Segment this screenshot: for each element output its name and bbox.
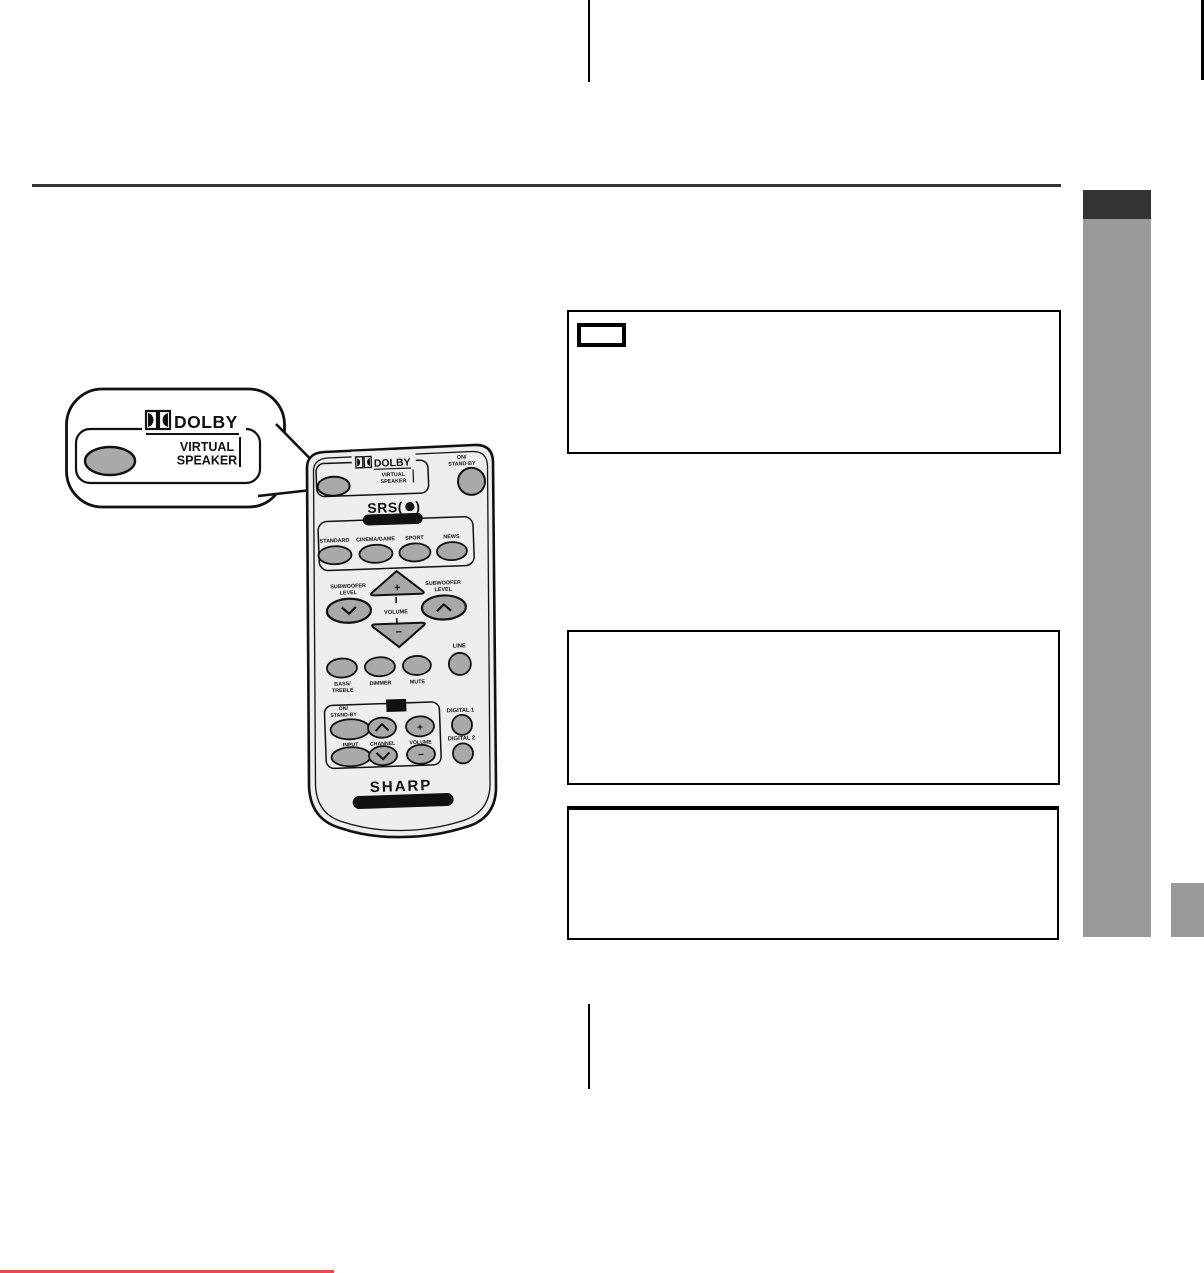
dolby-virtual-speaker-button <box>317 476 350 496</box>
wow-hd-label: WOW HD <box>378 517 407 525</box>
srs-close: ) <box>415 498 420 514</box>
power-label-line1: ON/ <box>457 455 467 461</box>
mute-label: MUTE <box>410 679 426 686</box>
callout-virtual-label: VIRTUAL <box>180 440 235 454</box>
bass-treble-button <box>327 658 358 678</box>
srs-text: SRS( <box>367 499 403 516</box>
mode-label-standard: STANDARD <box>319 538 349 545</box>
tv-volume-minus-icon: − <box>418 750 424 761</box>
volume-label: VOLUME <box>384 609 408 616</box>
subwoofer-left-label2: LEVEL <box>340 590 358 597</box>
volume-up-plus-icon: + <box>394 582 401 594</box>
callout-speaker-label: SPEAKER <box>177 454 237 468</box>
sharp-logo: SHARP <box>370 777 433 796</box>
bass-label1: BASS/ <box>334 681 351 688</box>
tv-power-label1: ON/ <box>339 706 349 712</box>
mode-label-sport: SPORT <box>405 535 424 542</box>
sidebar-bar <box>1083 219 1151 937</box>
subwoofer-level-down-button <box>327 598 372 624</box>
standard-button <box>318 546 352 565</box>
tv-channel-down-button <box>369 746 398 766</box>
info-box-1 <box>567 630 1060 785</box>
tv-input-button <box>331 747 371 767</box>
dimmer-button <box>365 657 396 677</box>
callout-dolby-brand: DOLBY <box>174 412 238 432</box>
remote-illustration: DOLBY VIRTUAL SPEAKER DOLBY VIRTUAL SPEA… <box>60 385 505 845</box>
dolby-double-d-icon <box>146 411 170 429</box>
bass-label2: TREBLE <box>332 688 354 695</box>
tv-badge-label: TV <box>391 702 401 711</box>
section-divider-rule <box>32 184 1061 187</box>
note-box <box>567 310 1061 454</box>
line-button <box>448 653 471 676</box>
sidebar-tab <box>1083 190 1151 219</box>
cinema-game-button <box>359 544 393 563</box>
volume-down-minus-icon: − <box>395 626 402 638</box>
note-label-box <box>577 323 626 347</box>
tv-power-label2: STAND-BY <box>330 712 357 719</box>
digital1-button <box>452 715 473 736</box>
subwoofer-right-label2: LEVEL <box>434 587 452 594</box>
crop-mark-bottom-center <box>588 1004 590 1089</box>
digital2-button <box>453 743 474 764</box>
sport-button <box>399 543 431 562</box>
power-label-line2: STAND·BY <box>448 461 476 468</box>
power-button <box>458 467 486 495</box>
dimmer-label: DIMMER <box>369 680 391 687</box>
tv-channel-up-button <box>368 717 397 738</box>
mode-label-news: NEWS <box>443 534 460 541</box>
callout-dolby-button <box>85 447 135 475</box>
remote-dolby-speaker: SPEAKER <box>380 478 406 485</box>
news-button <box>437 542 468 561</box>
crop-mark-top-center <box>588 0 590 82</box>
sidebar-page-square <box>1171 883 1204 937</box>
line-label: LINE <box>453 643 467 649</box>
tv-power-button <box>330 719 370 740</box>
info-box-2 <box>567 806 1059 940</box>
digital1-label: DIGITAL 1 <box>447 707 475 714</box>
mute-button <box>403 655 432 675</box>
subwoofer-level-up-button <box>421 595 466 621</box>
digital2-label: DIGITAL 2 <box>448 735 476 742</box>
manual-page: { "page": { "kind": "sound-bar-system-ma… <box>0 0 1204 1273</box>
tv-volume-plus-icon: + <box>417 722 423 733</box>
